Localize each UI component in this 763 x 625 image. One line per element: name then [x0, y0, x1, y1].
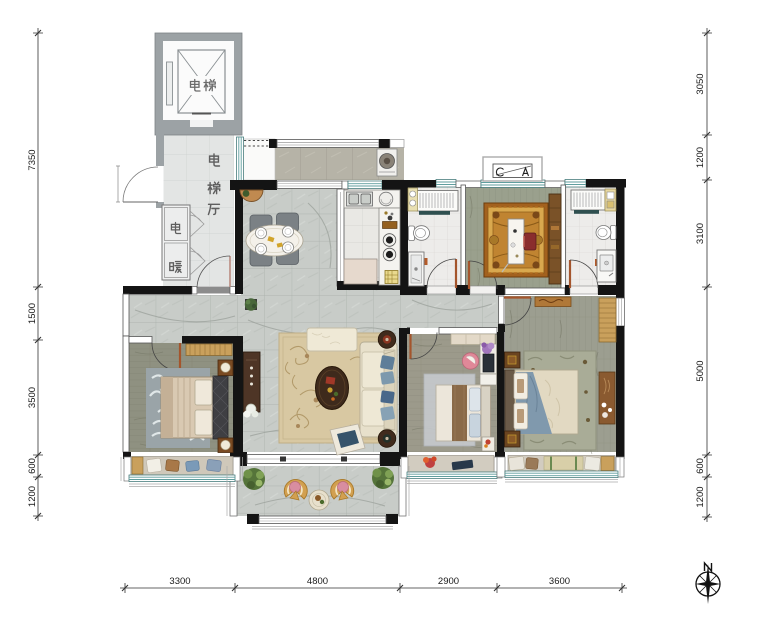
svg-text:1200: 1200 [695, 486, 706, 507]
svg-text:600: 600 [695, 458, 706, 474]
svg-text:2900: 2900 [438, 576, 459, 587]
svg-text:1200: 1200 [695, 147, 706, 168]
svg-text:3100: 3100 [695, 223, 706, 244]
svg-text:3500: 3500 [27, 387, 38, 408]
svg-text:7350: 7350 [27, 149, 38, 170]
svg-text:5000: 5000 [695, 360, 706, 381]
svg-text:3600: 3600 [549, 576, 570, 587]
svg-text:3050: 3050 [695, 73, 706, 94]
svg-text:4800: 4800 [307, 576, 328, 587]
svg-text:1500: 1500 [27, 303, 38, 324]
svg-text:3300: 3300 [169, 576, 190, 587]
svg-text:1200: 1200 [27, 486, 38, 507]
svg-text:600: 600 [27, 458, 38, 474]
